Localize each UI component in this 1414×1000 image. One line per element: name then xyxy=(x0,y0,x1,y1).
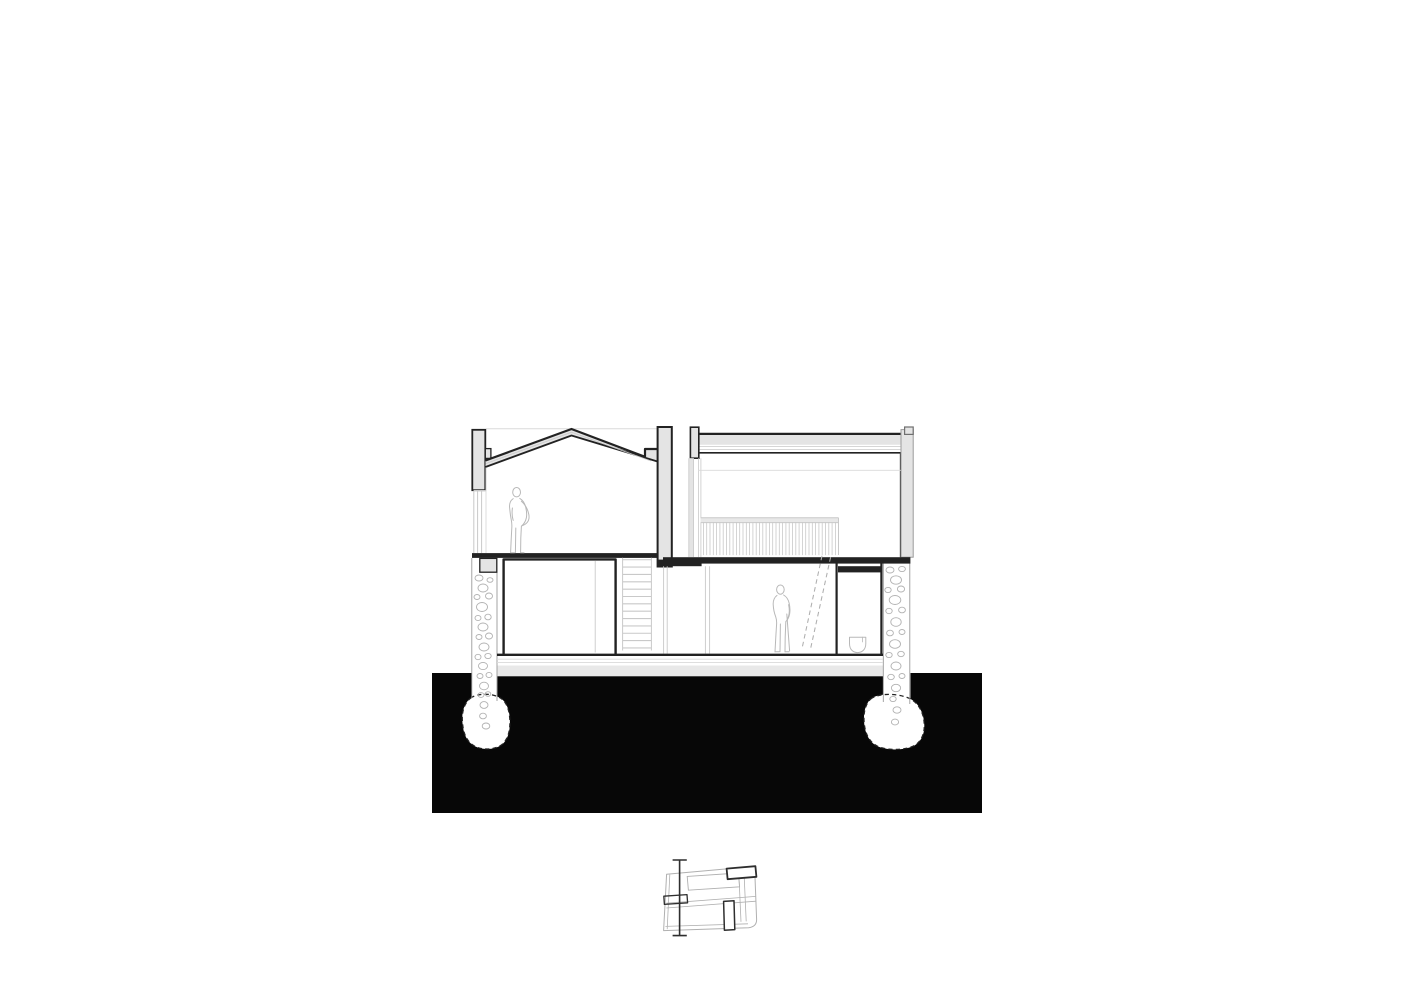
drawing-canvas xyxy=(0,0,1414,1000)
ground-floor-stair xyxy=(623,558,652,651)
key-plan xyxy=(664,860,757,936)
middle-party-wall xyxy=(658,427,710,654)
right-wall-elevation xyxy=(901,430,913,558)
sill-block xyxy=(480,558,497,572)
hidden-stair-dashed-lines xyxy=(802,556,831,649)
flat-roof-fill xyxy=(690,434,913,445)
left-room-walls xyxy=(504,559,616,654)
upper-floor-slab-left xyxy=(472,553,658,558)
floor-buildup-lines xyxy=(497,659,883,662)
ground-floor xyxy=(480,556,883,663)
left-foundation-pad xyxy=(462,694,510,749)
human-figures xyxy=(510,488,790,652)
figure-ground-floor xyxy=(773,585,790,652)
glass-wall-band xyxy=(689,458,694,557)
handrail-band xyxy=(701,518,839,523)
roof-buildup-lines xyxy=(699,446,901,449)
toilet-room-lintel xyxy=(838,566,881,572)
right-volume xyxy=(663,427,913,564)
walls-beyond-lines xyxy=(664,566,710,653)
figure-upper-floor xyxy=(510,488,530,553)
key-plan-volume-topright xyxy=(727,866,757,879)
left-volume xyxy=(472,429,658,558)
ceiling-and-inner-wall-line xyxy=(699,453,901,557)
ground-mass xyxy=(432,666,982,814)
left-cut-wall xyxy=(472,430,485,490)
section-drawing xyxy=(0,0,1414,1000)
sub-slab-strip xyxy=(497,666,883,677)
right-parapet-cap xyxy=(905,427,914,434)
wall-hung-fixture xyxy=(850,637,866,652)
key-plan-volume-vertical xyxy=(724,901,735,930)
middle-wall-cut xyxy=(658,427,672,567)
left-parapet-notch xyxy=(485,449,491,459)
left-parapet-cut xyxy=(690,427,698,458)
